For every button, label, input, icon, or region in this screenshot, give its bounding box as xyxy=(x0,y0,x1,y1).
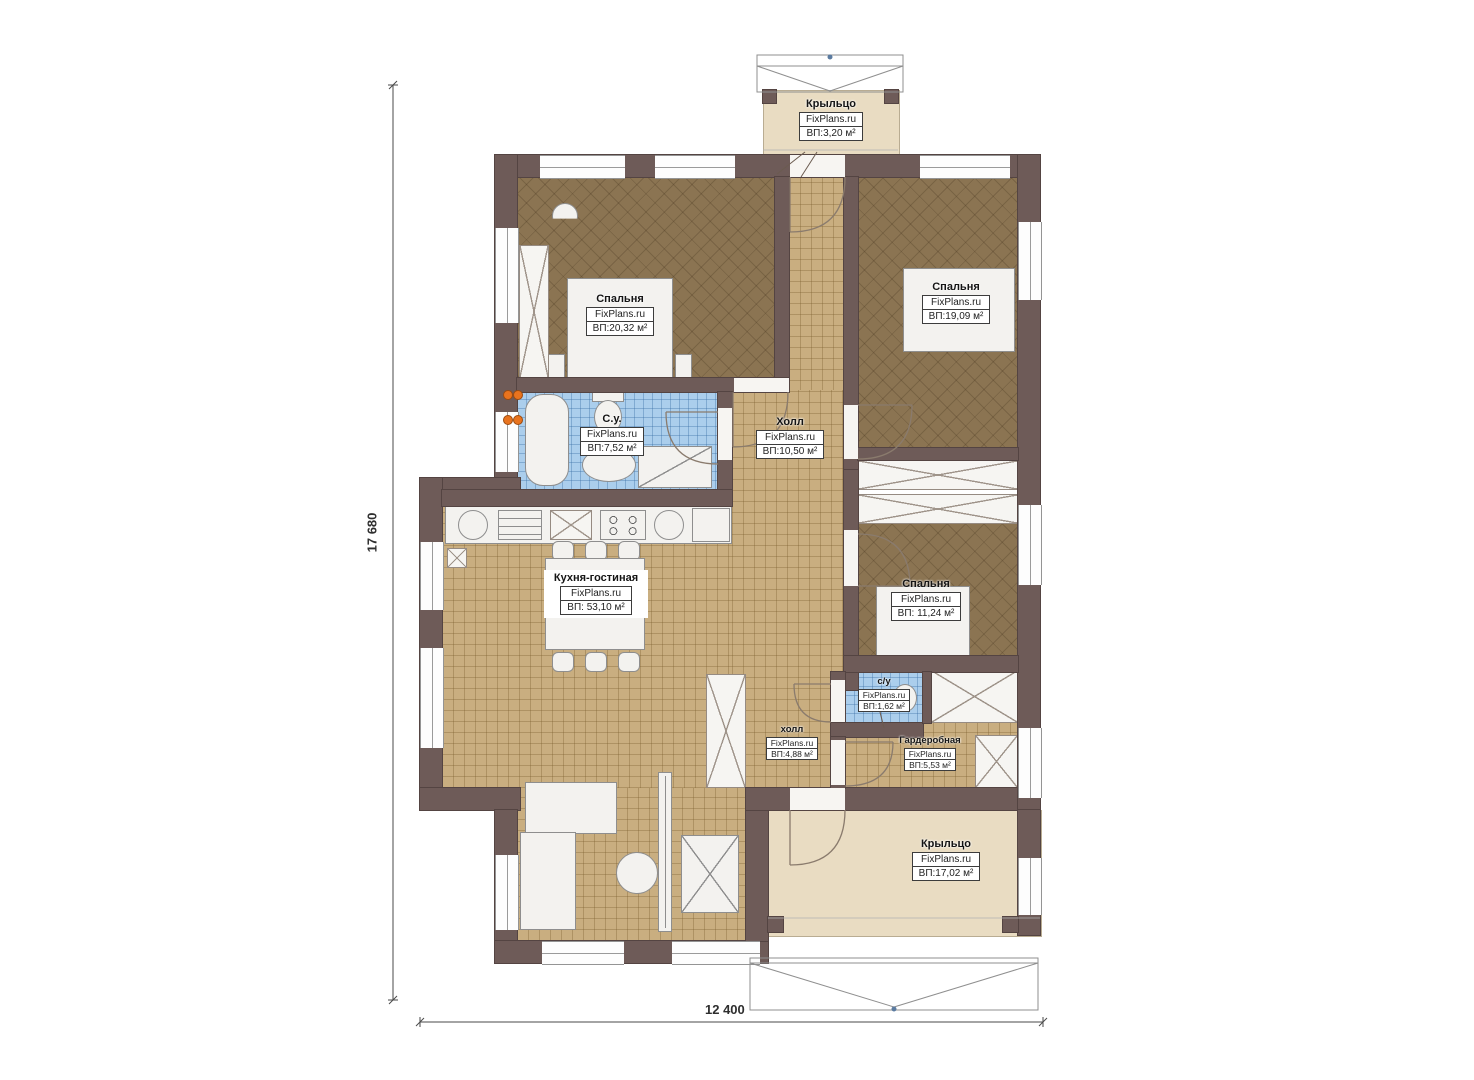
room-info-box: FixPlans.ru ВП:10,50 м² xyxy=(756,430,825,459)
door-gap-bedroom3 xyxy=(844,530,858,586)
floor-plan: Крыльцо FixPlans.ru ВП:3,20 м² Спальня F… xyxy=(0,0,1474,1080)
window xyxy=(1018,858,1042,915)
room-info-box: FixPlans.ru ВП: 53,10 м² xyxy=(560,586,631,615)
bathtub xyxy=(525,394,569,486)
window xyxy=(672,941,760,965)
room-name: Кухня-гостиная xyxy=(554,572,638,584)
brand-label: FixPlans.ru xyxy=(923,296,990,309)
door-gap-wc xyxy=(831,680,845,722)
room-area: ВП: 53,10 м² xyxy=(561,600,630,614)
window xyxy=(1018,222,1042,300)
chair xyxy=(618,652,640,672)
wall-step-lower xyxy=(420,788,520,810)
vent-box xyxy=(447,548,467,568)
radiator-dot xyxy=(513,415,523,425)
stove-icon xyxy=(600,510,646,540)
room-area: ВП:5,53 м² xyxy=(905,759,956,770)
closet-bedroom1 xyxy=(519,245,549,378)
brand-label: FixPlans.ru xyxy=(892,593,961,606)
porch-post xyxy=(885,90,898,103)
kitchen-sink-icon xyxy=(458,510,488,540)
room-label-hall2: холл FixPlans.ru ВП:4,88 м² xyxy=(752,724,832,760)
door-gap-bedroom2 xyxy=(844,405,858,459)
roof-top xyxy=(757,55,903,93)
cabinet-x-icon xyxy=(550,510,592,540)
room-label-hall: Холл FixPlans.ru ВП:10,50 м² xyxy=(746,416,834,459)
nightstand xyxy=(675,354,692,378)
room-area: ВП: 11,24 м² xyxy=(892,606,961,620)
wall-kitchen-top xyxy=(442,490,732,506)
window xyxy=(540,155,625,179)
radiator-dot xyxy=(513,390,523,400)
counter-end-cabinet xyxy=(692,508,730,542)
chair xyxy=(585,652,607,672)
room-info-box: FixPlans.ru ВП: 11,24 м² xyxy=(891,592,962,621)
sofa-chaise xyxy=(520,832,576,930)
room-label-wc: с/у FixPlans.ru ВП:1,62 м² xyxy=(846,676,922,712)
sofa-seat xyxy=(525,782,617,834)
wall-bedroom3-bottom xyxy=(844,656,1018,672)
radiator-dot xyxy=(503,390,513,400)
nightstand xyxy=(548,354,565,378)
closet-bedroom2 xyxy=(858,460,1018,490)
radiator-dot xyxy=(503,415,513,425)
room-name: Гардеробная xyxy=(899,735,960,746)
cooktop-icon xyxy=(654,510,684,540)
room-info-box: FixPlans.ru ВП:17,02 м² xyxy=(912,852,981,881)
room-info-box: FixPlans.ru ВП:20,32 м² xyxy=(586,307,655,336)
room-area: ВП:4,88 м² xyxy=(767,748,818,759)
room-label-bathroom: С.у. FixPlans.ru ВП:7,52 м² xyxy=(568,413,656,456)
brand-label: FixPlans.ru xyxy=(587,308,654,321)
brand-label: FixPlans.ru xyxy=(757,431,824,444)
room-label-porch-top: Крыльцо FixPlans.ru ВП:3,20 м² xyxy=(786,98,876,141)
entry-door-gap xyxy=(790,155,845,177)
brand-label: FixPlans.ru xyxy=(767,738,818,748)
window xyxy=(920,155,1010,179)
brand-label: FixPlans.ru xyxy=(859,690,910,700)
room-name: с/у xyxy=(877,676,890,687)
room-label-bedroom2: Спальня FixPlans.ru ВП:19,09 м² xyxy=(908,281,1004,324)
room-area: ВП:10,50 м² xyxy=(757,444,824,458)
brand-label: FixPlans.ru xyxy=(800,113,862,126)
room-area: ВП:3,20 м² xyxy=(800,126,862,140)
coffee-table xyxy=(616,852,658,894)
tv-stand xyxy=(658,772,672,932)
room-info-box: FixPlans.ru ВП:4,88 м² xyxy=(766,737,819,760)
window xyxy=(542,941,624,965)
room-name: холл xyxy=(781,724,804,735)
room-info-box: FixPlans.ru ВП:5,53 м² xyxy=(904,748,957,771)
porch-post xyxy=(768,917,783,932)
room-area: ВП:17,02 м² xyxy=(913,866,980,880)
door-gap-bedroom1 xyxy=(734,378,789,392)
room-info-box: FixPlans.ru ВП:19,09 м² xyxy=(922,295,991,324)
room-info-box: FixPlans.ru ВП:3,20 м² xyxy=(799,112,863,141)
window xyxy=(495,228,519,323)
wall-bedroom1-corridor xyxy=(775,177,789,378)
room-name: С.у. xyxy=(602,413,621,425)
dimension-width: 12 400 xyxy=(705,1002,745,1017)
window xyxy=(1018,505,1042,585)
room-area: ВП:20,32 м² xyxy=(587,321,654,335)
room-name: Крыльцо xyxy=(806,98,856,110)
wall-bedroom2-bottom xyxy=(858,448,1018,460)
wall-wc-right xyxy=(923,672,931,723)
room-label-bedroom3: Спальня FixPlans.ru ВП: 11,24 м² xyxy=(878,578,974,621)
wall-left-kitchen xyxy=(420,478,442,810)
room-area: ВП:19,09 м² xyxy=(923,309,990,323)
window xyxy=(420,542,444,610)
window xyxy=(655,155,735,179)
closet-bedroom3 xyxy=(858,494,1018,524)
window xyxy=(495,855,519,930)
door-gap-bathroom xyxy=(718,408,732,460)
room-name: Крыльцо xyxy=(921,838,971,850)
room-area: ВП:1,62 м² xyxy=(859,700,910,711)
room-info-box: FixPlans.ru ВП:7,52 м² xyxy=(580,427,644,456)
brand-label: FixPlans.ru xyxy=(905,749,956,759)
dimension-height: 17 680 xyxy=(364,513,379,553)
room-label-kitchen: Кухня-гостиная FixPlans.ru ВП: 53,10 м² xyxy=(544,570,648,618)
window xyxy=(420,648,444,748)
tall-cabinet xyxy=(706,674,746,788)
room-area: ВП:7,52 м² xyxy=(581,441,643,455)
door-gap-wardrobe xyxy=(831,740,845,785)
fireplace xyxy=(681,835,739,913)
drawer-unit-icon xyxy=(498,510,542,540)
room-name: Холл xyxy=(776,416,804,428)
closet-wardrobe-right xyxy=(975,735,1018,788)
room-name: Спальня xyxy=(596,293,644,305)
brand-label: FixPlans.ru xyxy=(561,587,630,600)
room-name: Спальня xyxy=(902,578,950,590)
room-label-wardrobe: Гардеробная FixPlans.ru ВП:5,53 м² xyxy=(884,735,976,771)
door-gap-porch xyxy=(790,788,845,810)
room-info-box: FixPlans.ru ВП:1,62 м² xyxy=(858,689,911,712)
corridor-floor xyxy=(789,177,844,392)
wall-right-lowerblock xyxy=(746,810,768,941)
brand-label: FixPlans.ru xyxy=(581,428,643,441)
window xyxy=(1018,728,1042,798)
room-name: Спальня xyxy=(932,281,980,293)
brand-label: FixPlans.ru xyxy=(913,853,980,866)
roof-bottom xyxy=(750,958,1038,1012)
room-label-bedroom1: Спальня FixPlans.ru ВП:20,32 м² xyxy=(572,293,668,336)
room-label-porch-bottom: Крыльцо FixPlans.ru ВП:17,02 м² xyxy=(900,838,992,881)
porch-post xyxy=(763,90,776,103)
porch-post xyxy=(1003,917,1018,932)
chair xyxy=(552,652,574,672)
kitchen-counter xyxy=(445,506,732,544)
closet-wardrobe-top xyxy=(931,670,1018,723)
